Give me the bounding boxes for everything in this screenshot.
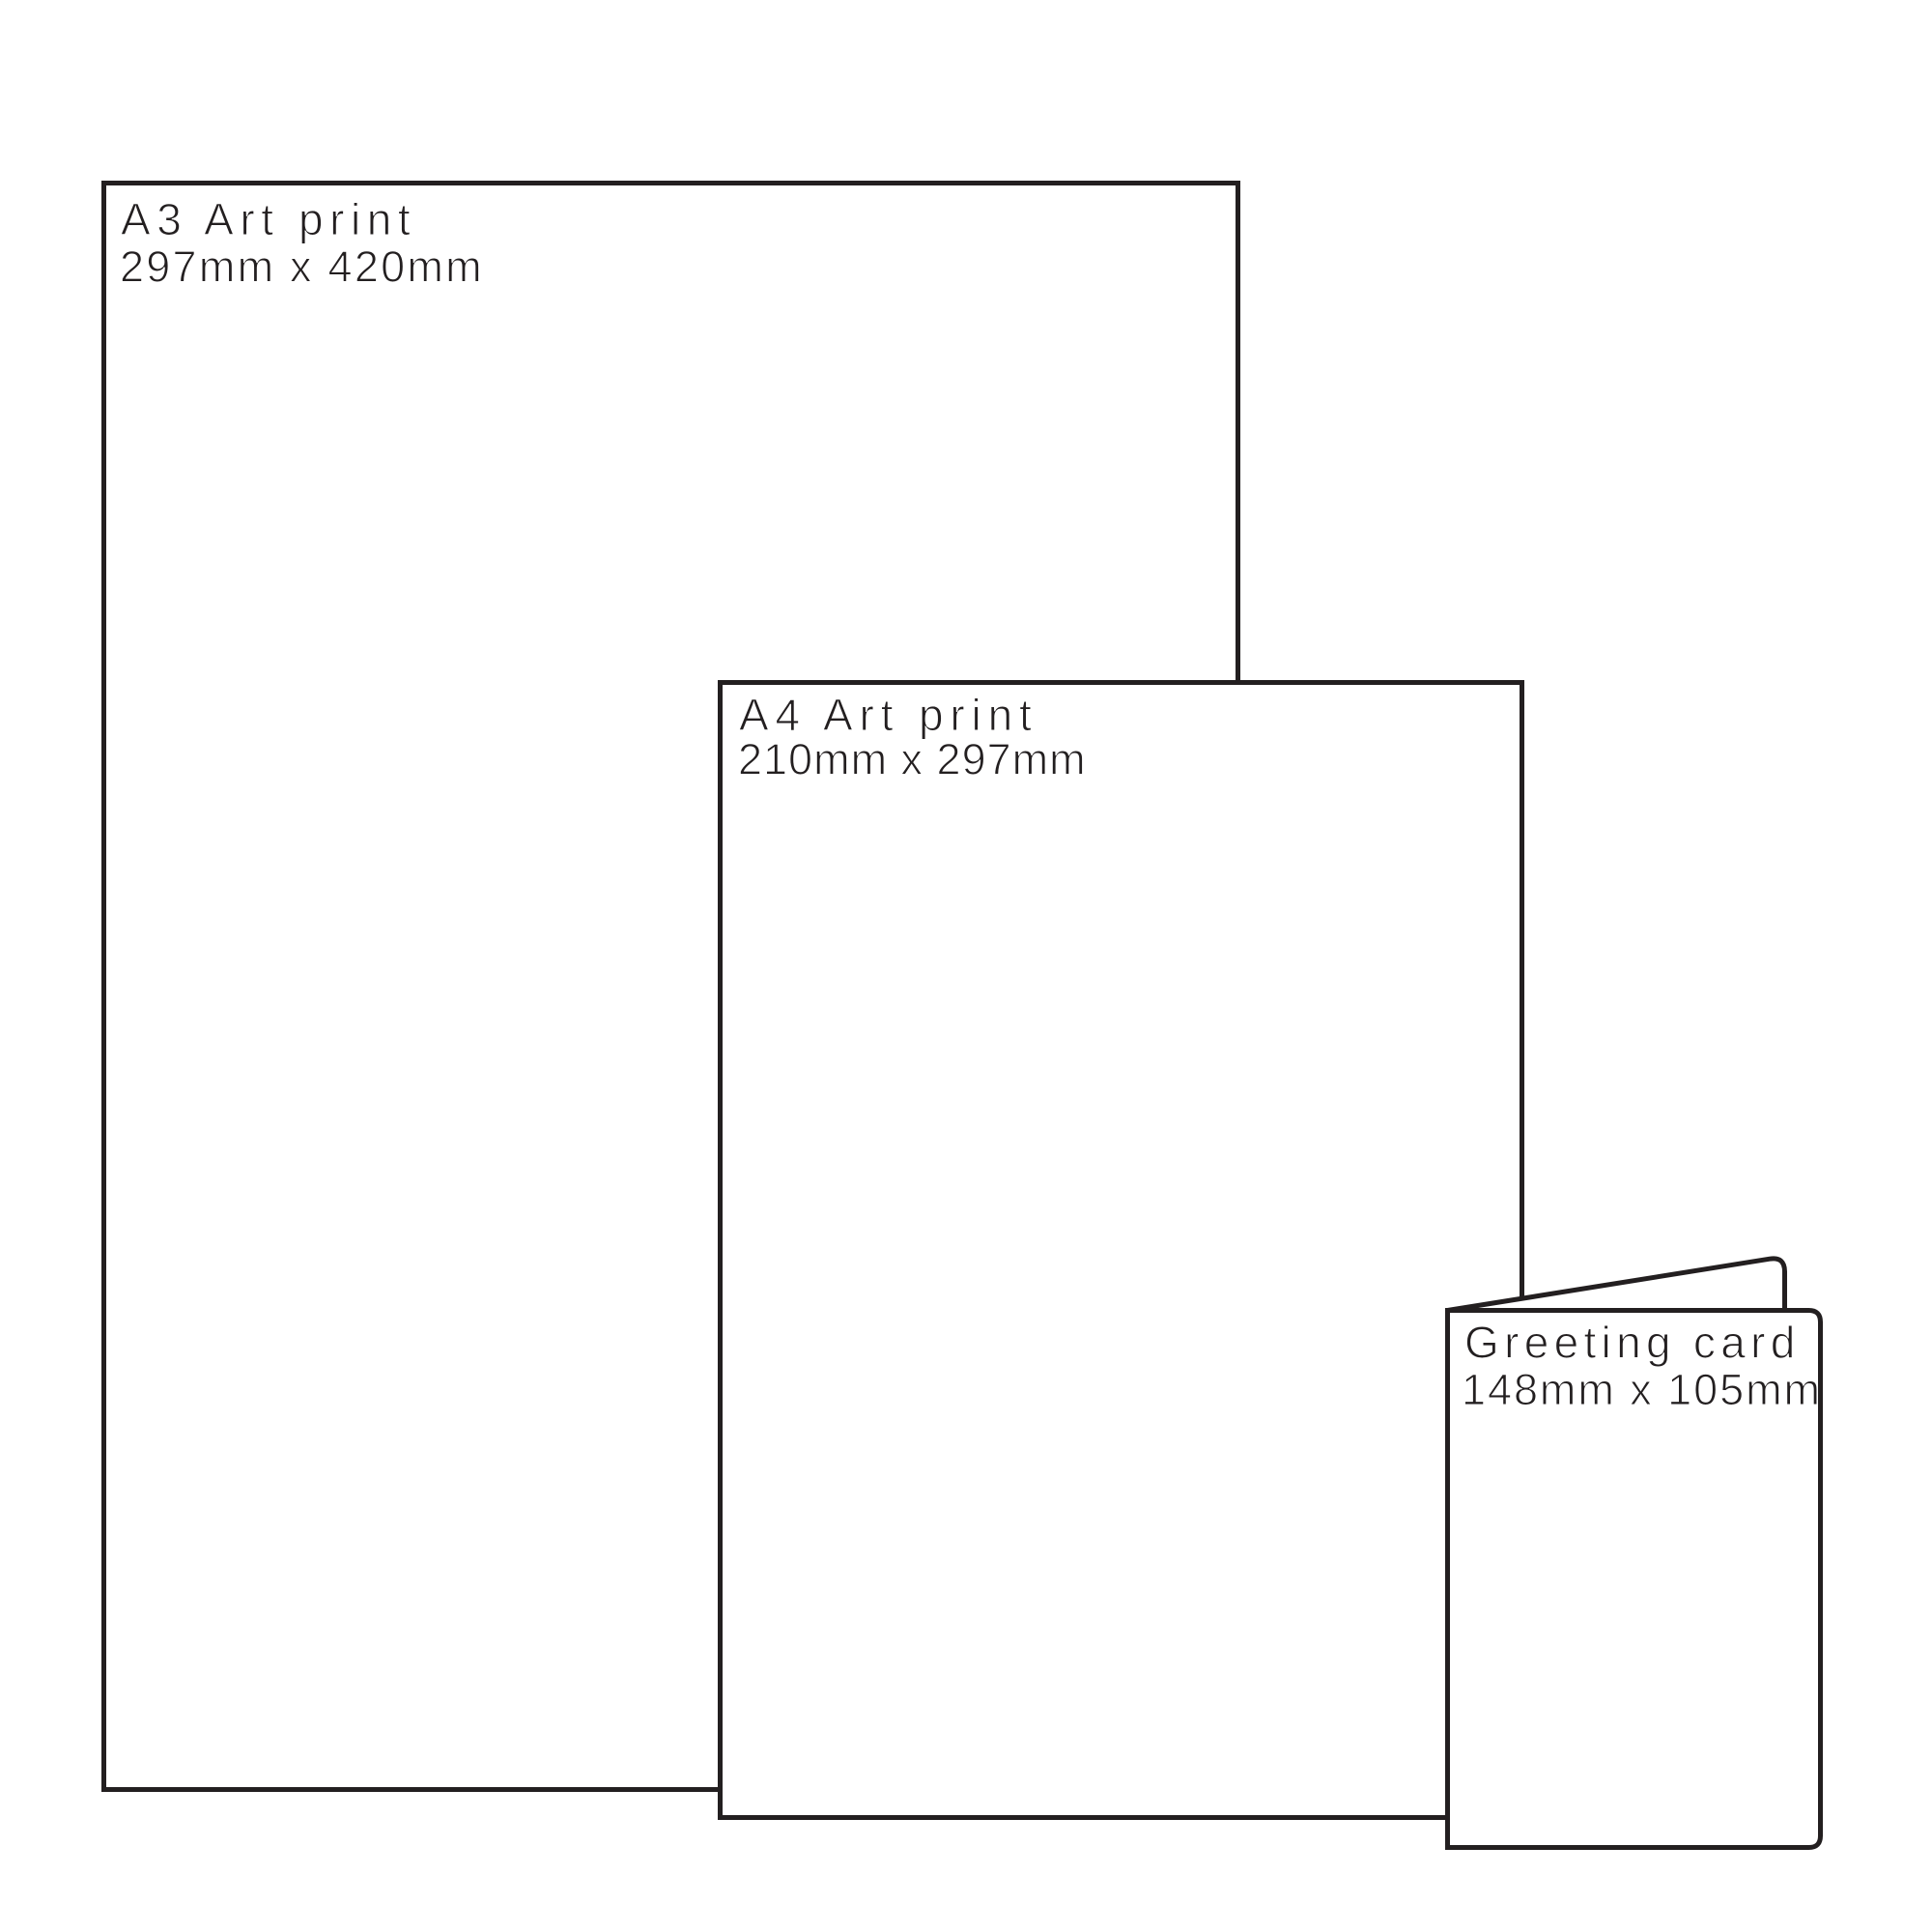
svg-text:A3 Art print: A3 Art print (121, 194, 416, 244)
svg-text:297mm x 420mm: 297mm x 420mm (120, 242, 484, 292)
svg-text:Greeting card: Greeting card (1464, 1318, 1801, 1368)
svg-text:210mm x 297mm: 210mm x 297mm (738, 735, 1087, 784)
svg-text:148mm x 105mm: 148mm x 105mm (1462, 1365, 1822, 1414)
svg-text:A4 Art print: A4 Art print (739, 690, 1038, 740)
